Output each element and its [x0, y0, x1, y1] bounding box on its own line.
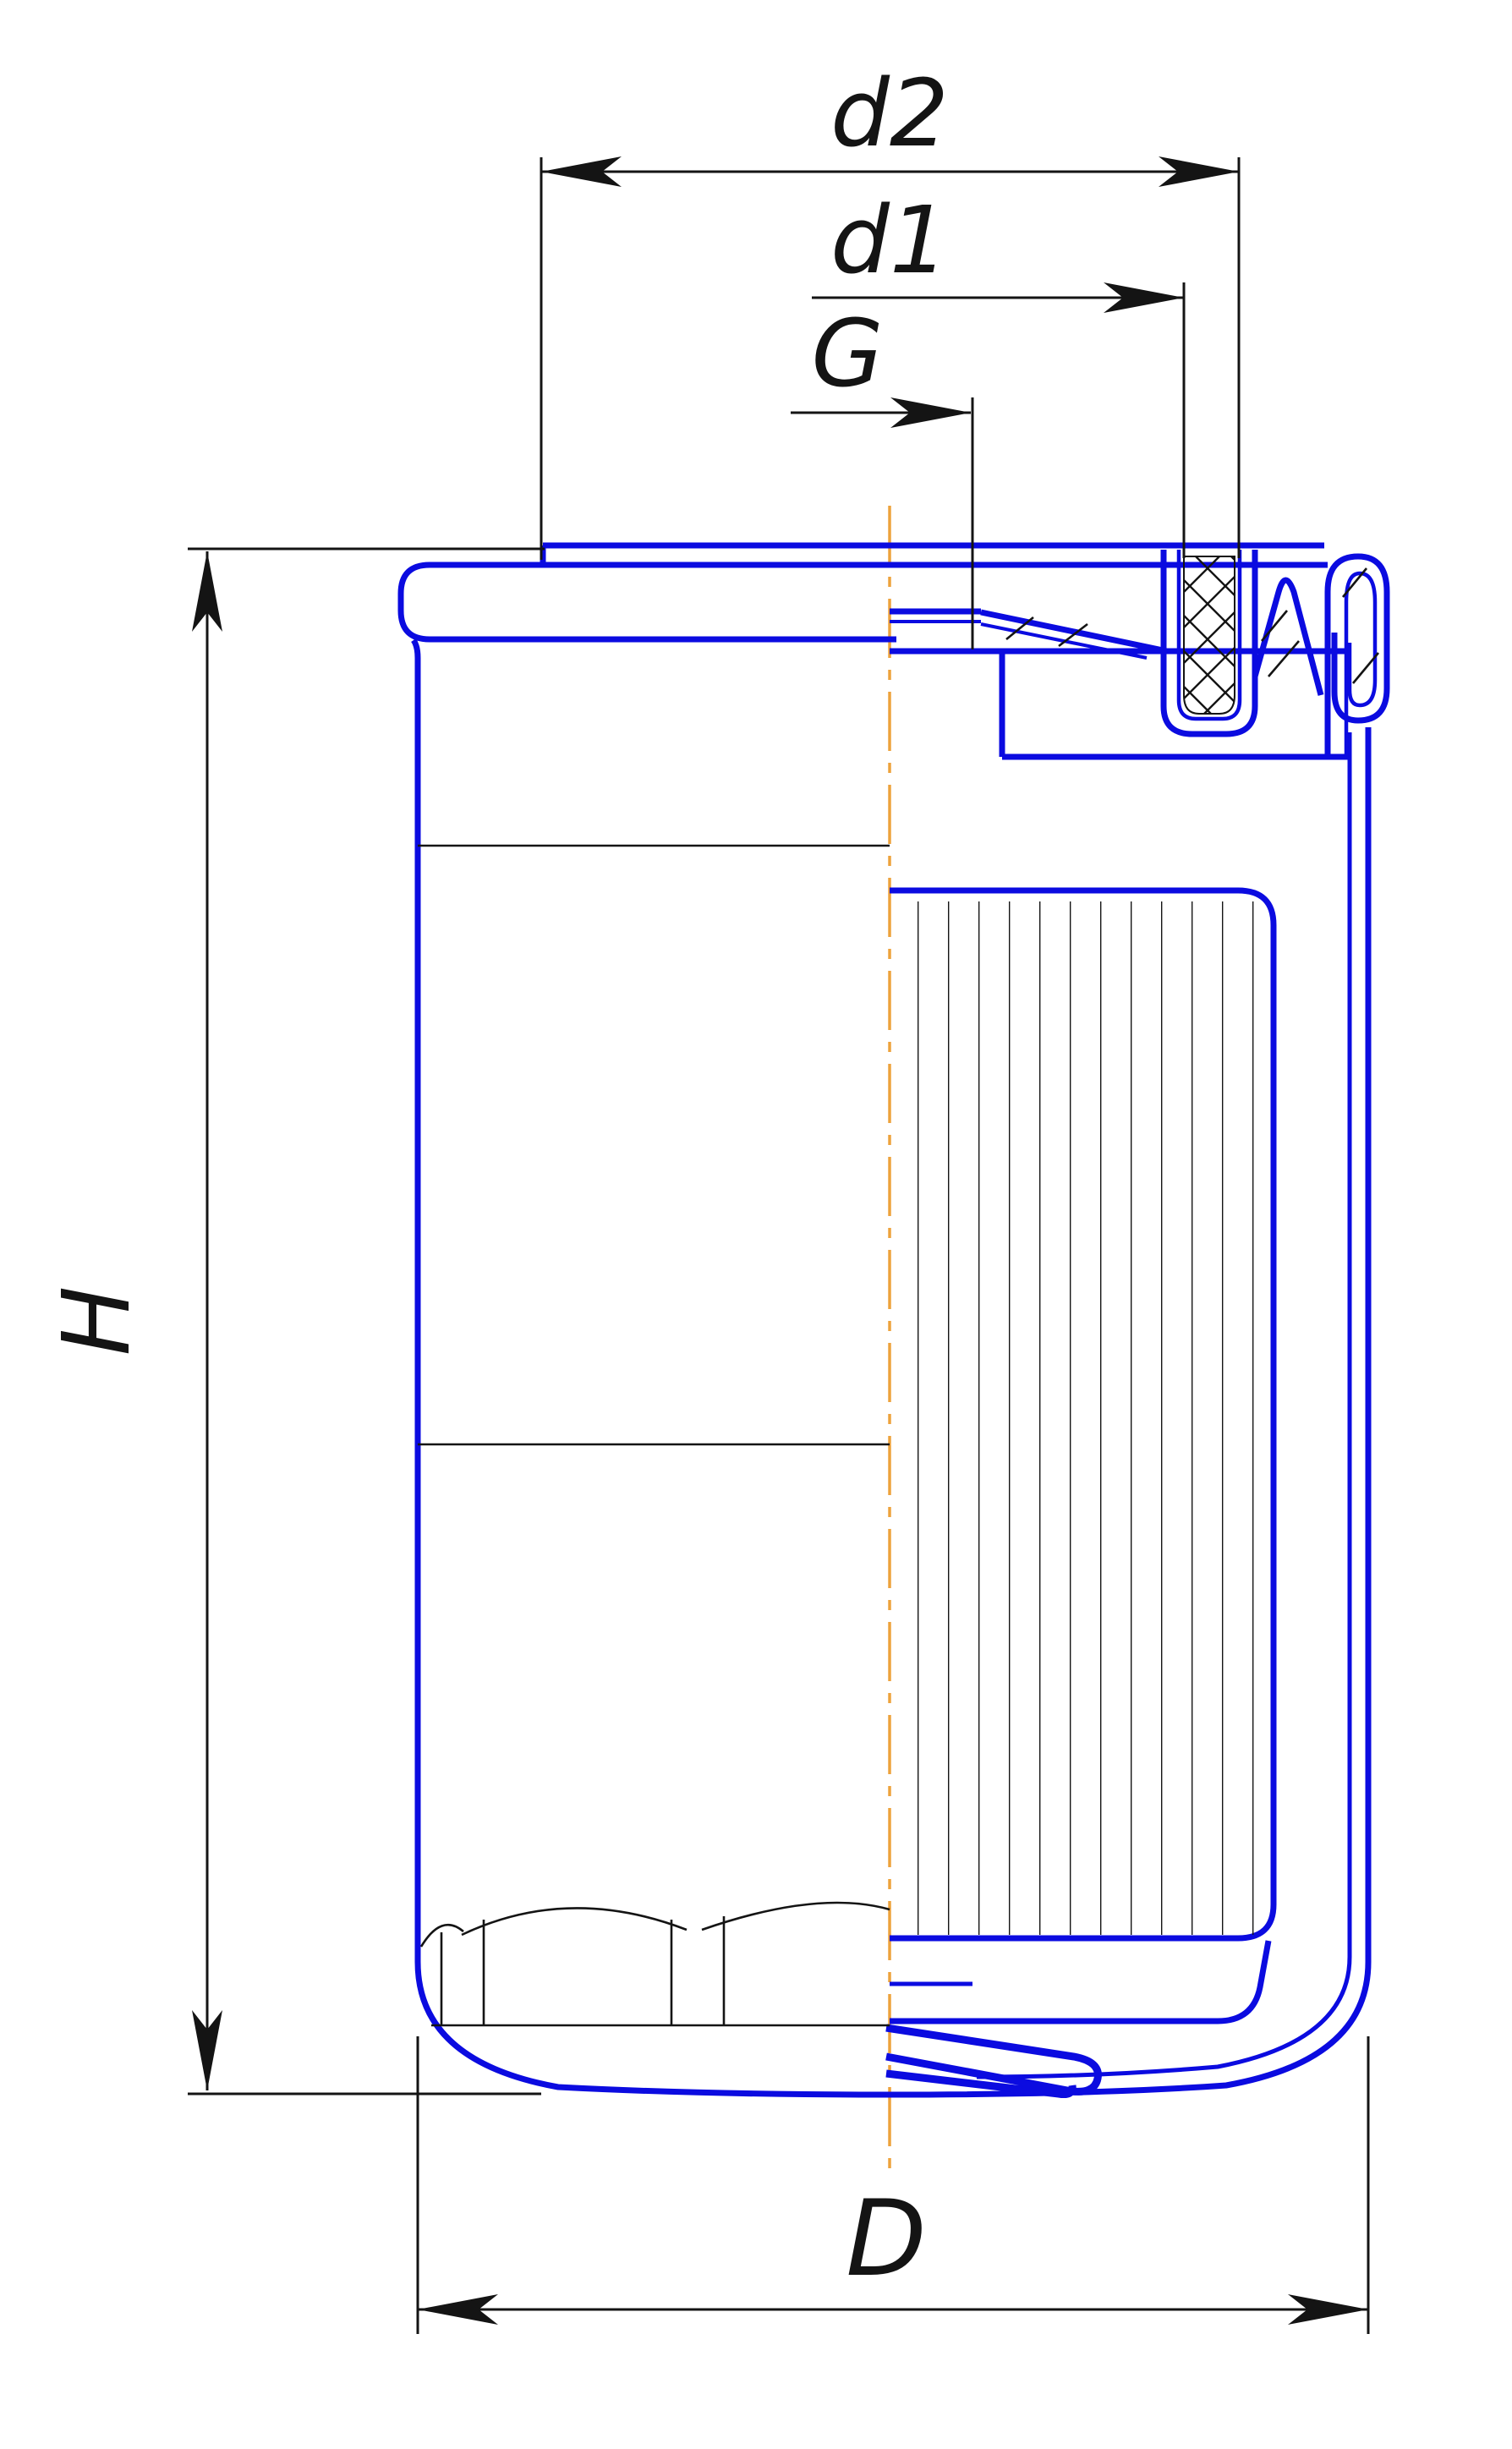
dim-label-diameter-d: D [846, 2178, 926, 2300]
oil-filter-section-drawing: d2 d1 G H D [0, 0, 1512, 2449]
filter-part-geometry [401, 545, 1387, 2095]
dim-label-d2: d2 [830, 59, 949, 167]
filter-element-pleats [901, 901, 1268, 1935]
dim-label-d1: d1 [830, 186, 949, 294]
tapping-plate-slant [981, 612, 1167, 651]
can-left-wall-and-bottom [414, 640, 890, 2095]
drawing-canvas: d2 d1 G H D [0, 0, 1512, 2449]
exterior-detail-lines [418, 846, 890, 2025]
bottom-spring [886, 2028, 1098, 2095]
dome-center [462, 1908, 687, 2025]
dome-right [702, 1903, 890, 2025]
dim-label-thread-g: G [811, 299, 883, 408]
rolled-seam-curl-outer [1328, 556, 1387, 759]
gasket-crosshatch [1184, 556, 1235, 714]
dim-label-height-h: H [42, 1286, 151, 1356]
bottom-end-plate [890, 1941, 1268, 2021]
